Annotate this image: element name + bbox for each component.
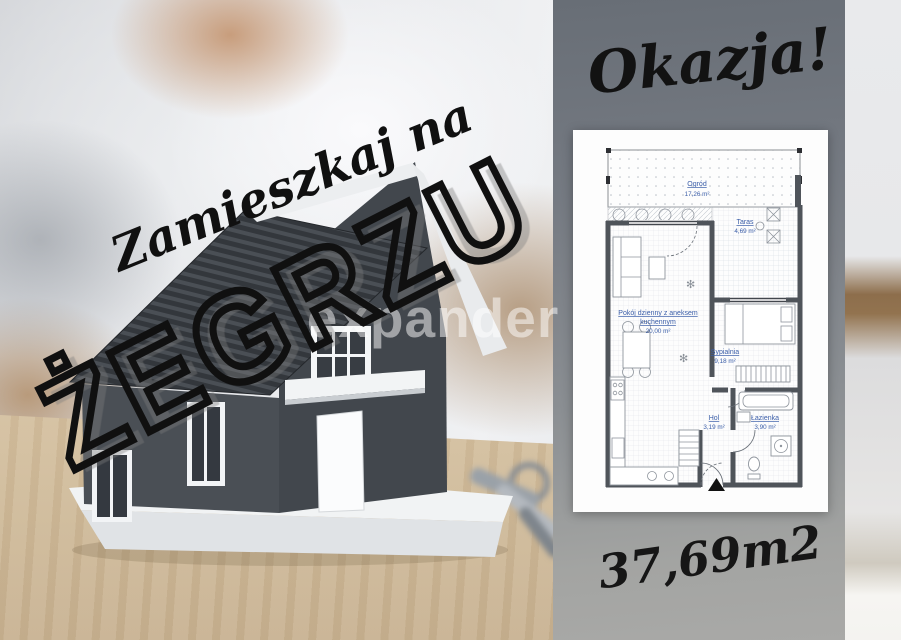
room-area-living: 20,00 m² xyxy=(646,328,671,335)
room-label-living-line2: kuchennym xyxy=(640,319,676,326)
toilet xyxy=(748,457,760,479)
garden-area: Ogród 17,26 m² xyxy=(606,148,802,207)
room-label-bedroom: Sypialnia xyxy=(711,349,740,356)
room-label-terrace: Taras xyxy=(736,219,754,226)
balcony-window xyxy=(629,220,697,226)
room-label-bathroom: Łazienka xyxy=(751,415,779,422)
sofa xyxy=(613,237,641,297)
room-area-terrace: 4,69 m² xyxy=(734,228,755,235)
room-area-bathroom: 3,90 m² xyxy=(754,424,775,431)
wall-stub xyxy=(795,175,801,207)
terrace-floor xyxy=(712,207,800,300)
room-area-bedroom: 9,18 m² xyxy=(714,358,735,365)
wardrobe xyxy=(736,366,790,382)
bedroom-window xyxy=(730,297,786,303)
room-area-hall: 3,19 m² xyxy=(703,424,724,431)
floorplan-card: Ogród 17,26 m² xyxy=(573,130,828,512)
plant-icon: ✻ xyxy=(686,279,695,291)
room-label-garden: Ogród xyxy=(687,181,707,188)
plant-icon: ✻ xyxy=(679,353,688,365)
room-label-hall: Hol xyxy=(709,415,720,422)
room-area-garden: 17,26 m² xyxy=(685,191,710,198)
house-door xyxy=(317,411,364,512)
bathroom-sink xyxy=(737,412,750,422)
coffee-table xyxy=(649,257,665,279)
bathtub xyxy=(739,392,793,410)
right-photo-strip xyxy=(845,0,901,640)
washer xyxy=(771,436,791,456)
floorplan: Ogród 17,26 m² xyxy=(573,130,828,512)
room-label-living-line1: Pokój dzienny z aneksem xyxy=(618,310,698,317)
bed xyxy=(725,304,795,344)
